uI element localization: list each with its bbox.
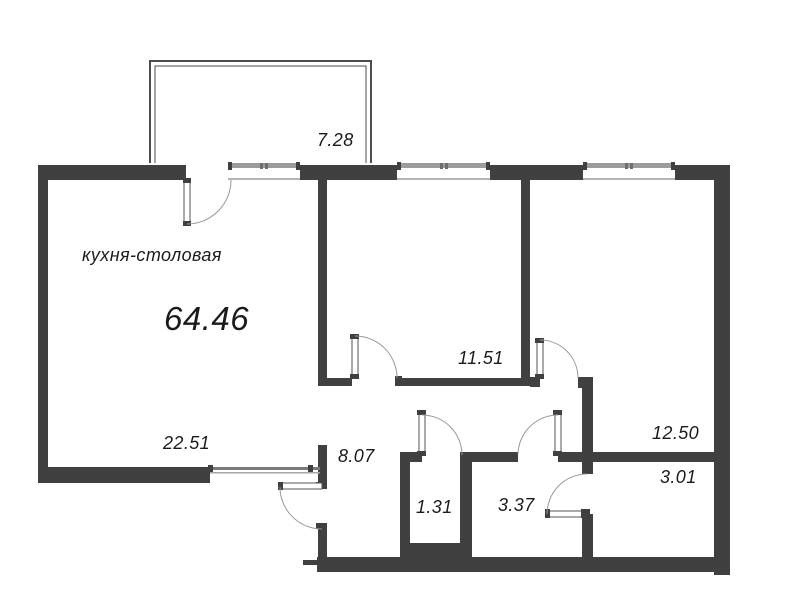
window-tick (630, 163, 633, 169)
wall-top-a (38, 165, 186, 180)
door-swing-arc (518, 415, 558, 455)
wall-top-b (300, 165, 397, 180)
door-leaf-cap (553, 410, 562, 415)
window-jamb (583, 162, 587, 170)
door-leaf-cap (350, 374, 359, 379)
exterior-walls (38, 165, 730, 575)
door-swing-arc (355, 336, 397, 378)
storage-door (545, 474, 590, 518)
area-label-apartment-total: 64.46 (164, 300, 249, 338)
balcony-door (183, 178, 231, 226)
living-room-door (350, 334, 397, 379)
window-tick (625, 163, 628, 169)
door-leaf-cap (417, 410, 426, 415)
bedroom-door (535, 338, 578, 379)
area-label-living-room: 11.51 (458, 348, 504, 369)
shaft-block (403, 543, 472, 572)
door-leaf-cap (553, 451, 562, 456)
wall-room1-bottom-a (318, 378, 352, 386)
area-label-storage: 3.01 (660, 467, 697, 488)
area-label-bedroom: 12.50 (652, 423, 699, 444)
wall-left (38, 165, 48, 483)
window-tick (440, 163, 443, 169)
wall-bottom-tail (303, 560, 319, 565)
door-swing-arc (187, 180, 231, 224)
window-jamb (397, 162, 401, 170)
wall-bedroom-bottom (593, 452, 714, 462)
door-leaf-cap (183, 178, 191, 183)
window-tick (265, 163, 268, 169)
door-swing-arc (422, 415, 462, 455)
window-tick (445, 163, 448, 169)
wall-hall-b (460, 452, 518, 462)
partition-jamb (308, 465, 313, 473)
door-swing-arc (280, 487, 322, 529)
door-swing-arc (547, 474, 587, 514)
floor-plan-drawing (0, 0, 800, 600)
wall-vertical-lower (582, 514, 593, 557)
wall-room1-left (318, 180, 327, 386)
wall-hall-c (558, 452, 593, 462)
entrance-door (278, 482, 322, 529)
wall-right (714, 165, 730, 575)
window-jamb (486, 162, 490, 170)
area-label-bathroom: 3.37 (498, 495, 535, 516)
door-leaf-cap (535, 374, 544, 379)
wall-room1-right (521, 180, 530, 386)
window-jamb (296, 162, 300, 170)
window-frame (583, 163, 675, 168)
window-jamb (671, 162, 675, 170)
door-leaf (419, 412, 425, 455)
window-frame (228, 163, 300, 168)
wc-door (417, 410, 462, 456)
wall-wc-left (400, 452, 410, 557)
windows (208, 162, 675, 474)
wall-kitchen-bottom (38, 467, 210, 483)
door-leaf-cap (581, 509, 590, 518)
window-living-room (397, 162, 490, 180)
wall-entry-stub-lower (318, 528, 327, 560)
wall-top-c (490, 165, 583, 180)
room1-door-jamb (395, 376, 402, 386)
door-swing-arc (540, 340, 578, 378)
door-leaf (280, 483, 322, 489)
window-tick (260, 163, 263, 169)
entry-stub-cap (316, 523, 327, 529)
window-kitchen (228, 162, 300, 180)
window-frame (397, 163, 490, 168)
area-label-wc: 1.31 (416, 497, 453, 518)
floor-plan: 7.28 кухня-столовая 64.46 22.51 11.51 12… (0, 0, 800, 600)
window-sill-line (397, 178, 490, 180)
window-sill-line (583, 178, 675, 180)
area-label-balcony: 7.28 (317, 130, 354, 151)
door-leaf (184, 180, 190, 224)
corridor-partition (208, 465, 320, 474)
partition-jamb (208, 465, 213, 473)
door-leaf (352, 336, 358, 378)
window-bedroom (583, 162, 675, 180)
door-leaf (555, 412, 561, 455)
wall-bottom (317, 557, 730, 572)
door-leaf (537, 340, 543, 378)
window-sill-line (228, 178, 300, 180)
partition-line-bottom (210, 472, 320, 474)
wall-wc-right (460, 462, 472, 543)
partition-line-top (210, 467, 320, 470)
area-label-kitchen-dining: 22.51 (163, 433, 210, 454)
wall-entry-stub-upper (318, 445, 327, 483)
door-leaf-cap (417, 451, 426, 456)
bathroom-door (518, 410, 562, 456)
window-jamb (228, 162, 232, 170)
wall-room1-bottom-b (397, 378, 530, 386)
area-label-hallway: 8.07 (338, 446, 375, 467)
room-name-kitchen-dining: кухня-столовая (82, 245, 222, 266)
